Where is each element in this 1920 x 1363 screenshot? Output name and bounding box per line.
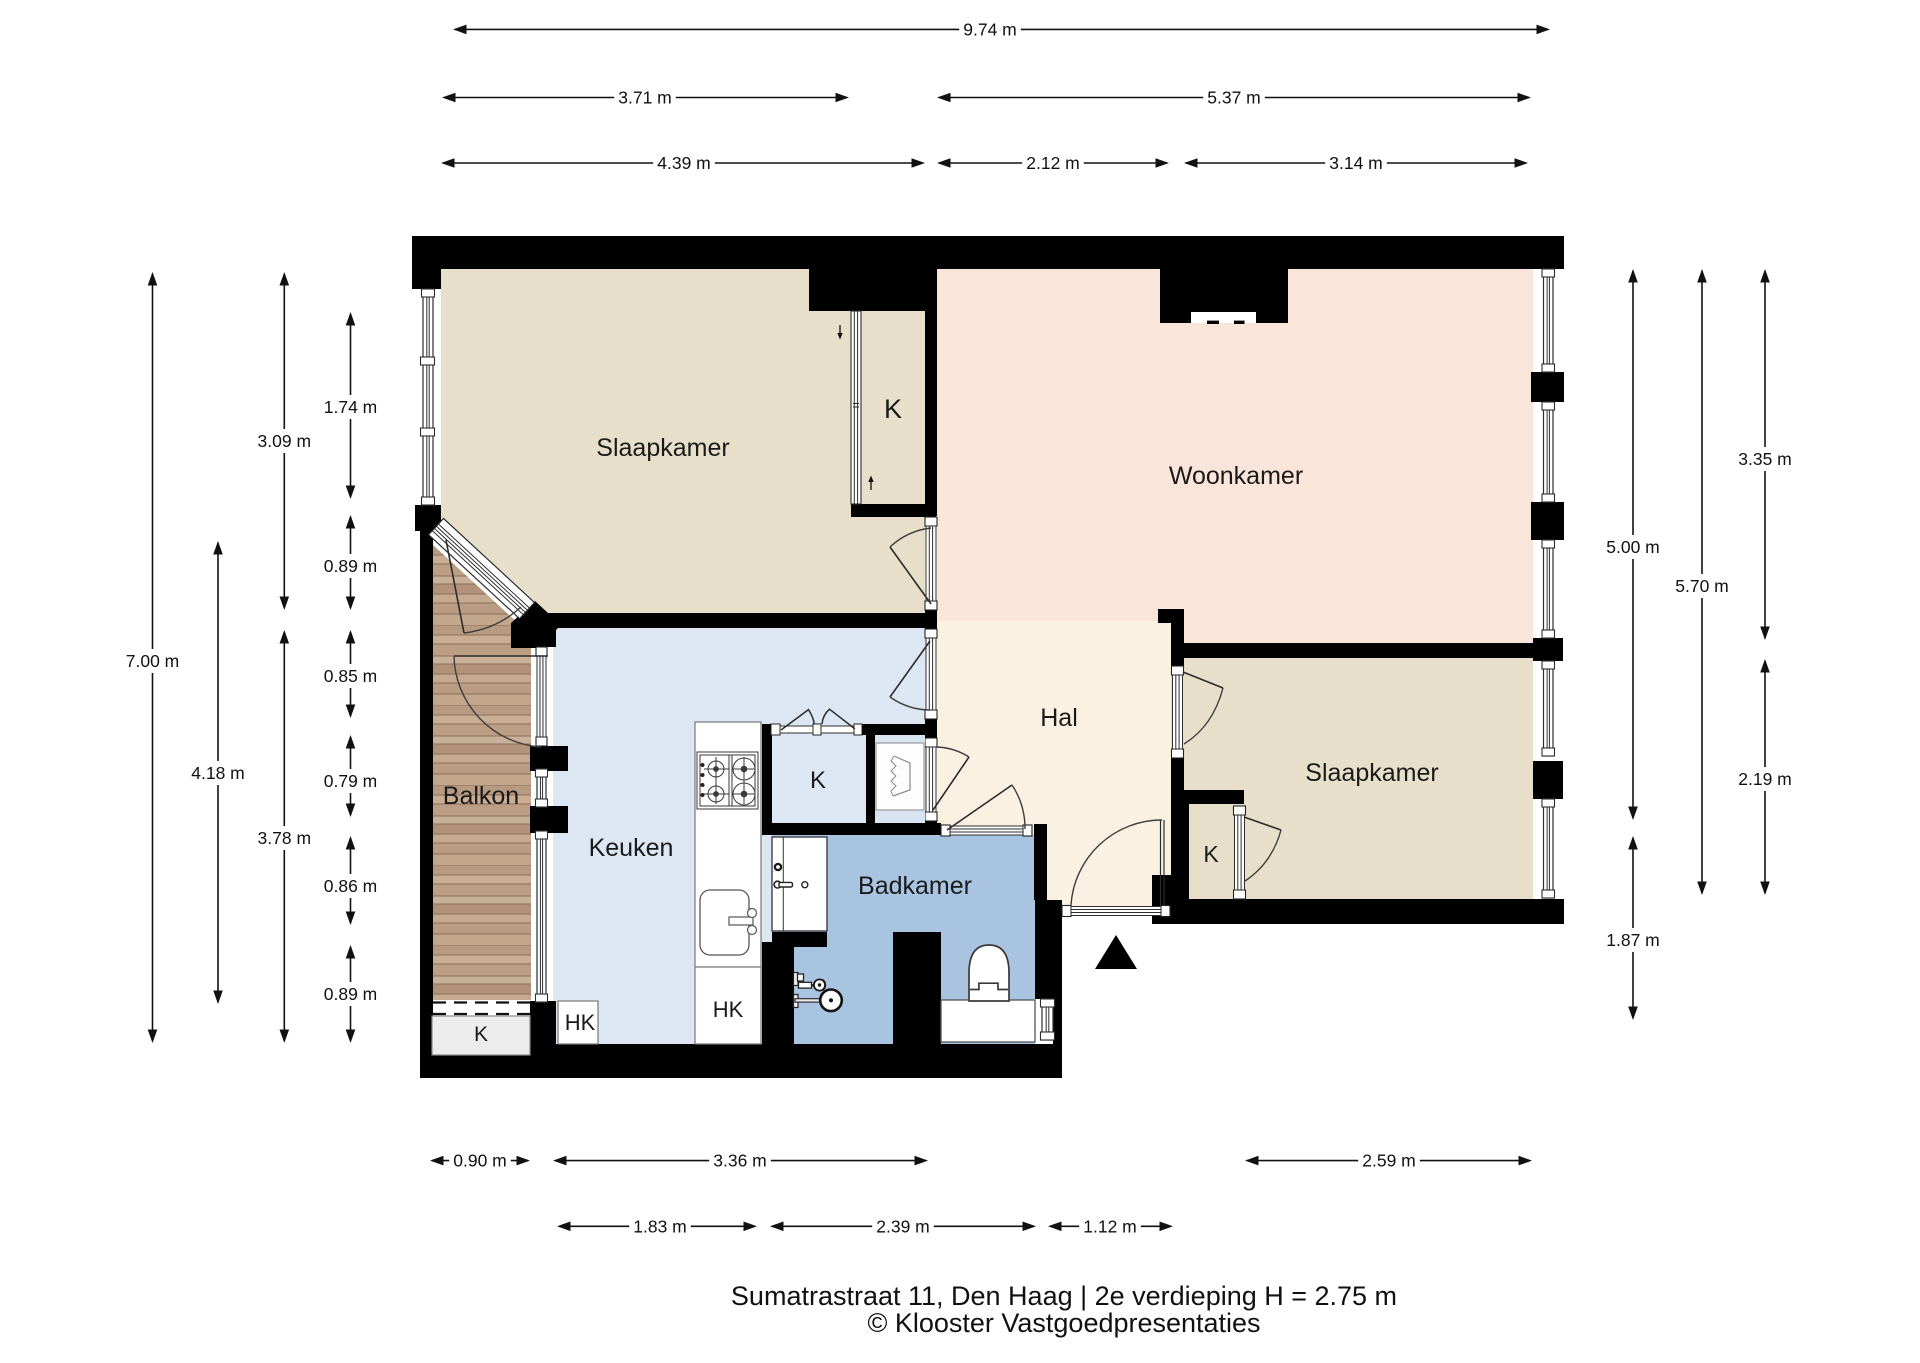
svg-text:5.00 m: 5.00 m bbox=[1606, 537, 1660, 557]
svg-text:0.79 m: 0.79 m bbox=[324, 771, 378, 791]
svg-text:0.90 m: 0.90 m bbox=[453, 1151, 507, 1171]
svg-text:2.59 m: 2.59 m bbox=[1362, 1151, 1416, 1171]
svg-text:0.89 m: 0.89 m bbox=[324, 984, 378, 1004]
svg-text:3.71 m: 3.71 m bbox=[618, 88, 672, 108]
svg-text:HK: HK bbox=[713, 997, 744, 1022]
svg-text:© Klooster Vastgoedpresentatie: © Klooster Vastgoedpresentaties bbox=[867, 1308, 1260, 1338]
svg-text:HK: HK bbox=[565, 1010, 596, 1035]
svg-text:4.39 m: 4.39 m bbox=[657, 153, 711, 173]
svg-text:Badkamer: Badkamer bbox=[858, 872, 972, 900]
svg-text:0.86 m: 0.86 m bbox=[324, 876, 378, 896]
svg-text:Hal: Hal bbox=[1040, 704, 1078, 732]
svg-text:7.00 m: 7.00 m bbox=[126, 651, 180, 671]
svg-text:3.09 m: 3.09 m bbox=[258, 431, 312, 451]
svg-text:2.39 m: 2.39 m bbox=[876, 1216, 930, 1236]
svg-text:K: K bbox=[474, 1023, 488, 1046]
svg-text:2.12 m: 2.12 m bbox=[1026, 153, 1080, 173]
svg-text:2.19 m: 2.19 m bbox=[1738, 769, 1792, 789]
svg-text:0.89 m: 0.89 m bbox=[324, 556, 378, 576]
svg-text:Slaapkamer: Slaapkamer bbox=[596, 434, 729, 462]
svg-text:Slaapkamer: Slaapkamer bbox=[1305, 759, 1438, 787]
svg-text:Balkon: Balkon bbox=[443, 782, 519, 810]
svg-text:3.78 m: 3.78 m bbox=[258, 828, 312, 848]
svg-text:9.74 m: 9.74 m bbox=[963, 19, 1017, 39]
svg-text:K: K bbox=[884, 394, 902, 424]
svg-text:K: K bbox=[1203, 841, 1219, 867]
svg-text:0.85 m: 0.85 m bbox=[324, 666, 378, 686]
svg-text:Sumatrastraat 11, Den Haag | 2: Sumatrastraat 11, Den Haag | 2e verdiepi… bbox=[731, 1281, 1397, 1311]
svg-text:3.14 m: 3.14 m bbox=[1329, 153, 1383, 173]
svg-text:1.74 m: 1.74 m bbox=[324, 397, 378, 417]
svg-text:1.83 m: 1.83 m bbox=[633, 1216, 687, 1236]
svg-text:5.37 m: 5.37 m bbox=[1207, 88, 1261, 108]
svg-text:3.35 m: 3.35 m bbox=[1738, 449, 1792, 469]
svg-text:K: K bbox=[810, 767, 826, 794]
svg-text:Keuken: Keuken bbox=[589, 834, 674, 862]
svg-text:1.12 m: 1.12 m bbox=[1083, 1216, 1137, 1236]
svg-text:5.70 m: 5.70 m bbox=[1675, 576, 1729, 596]
svg-text:3.36 m: 3.36 m bbox=[713, 1151, 767, 1171]
svg-text:1.87 m: 1.87 m bbox=[1606, 930, 1660, 950]
svg-text:4.18 m: 4.18 m bbox=[191, 763, 245, 783]
svg-text:Woonkamer: Woonkamer bbox=[1169, 462, 1303, 490]
